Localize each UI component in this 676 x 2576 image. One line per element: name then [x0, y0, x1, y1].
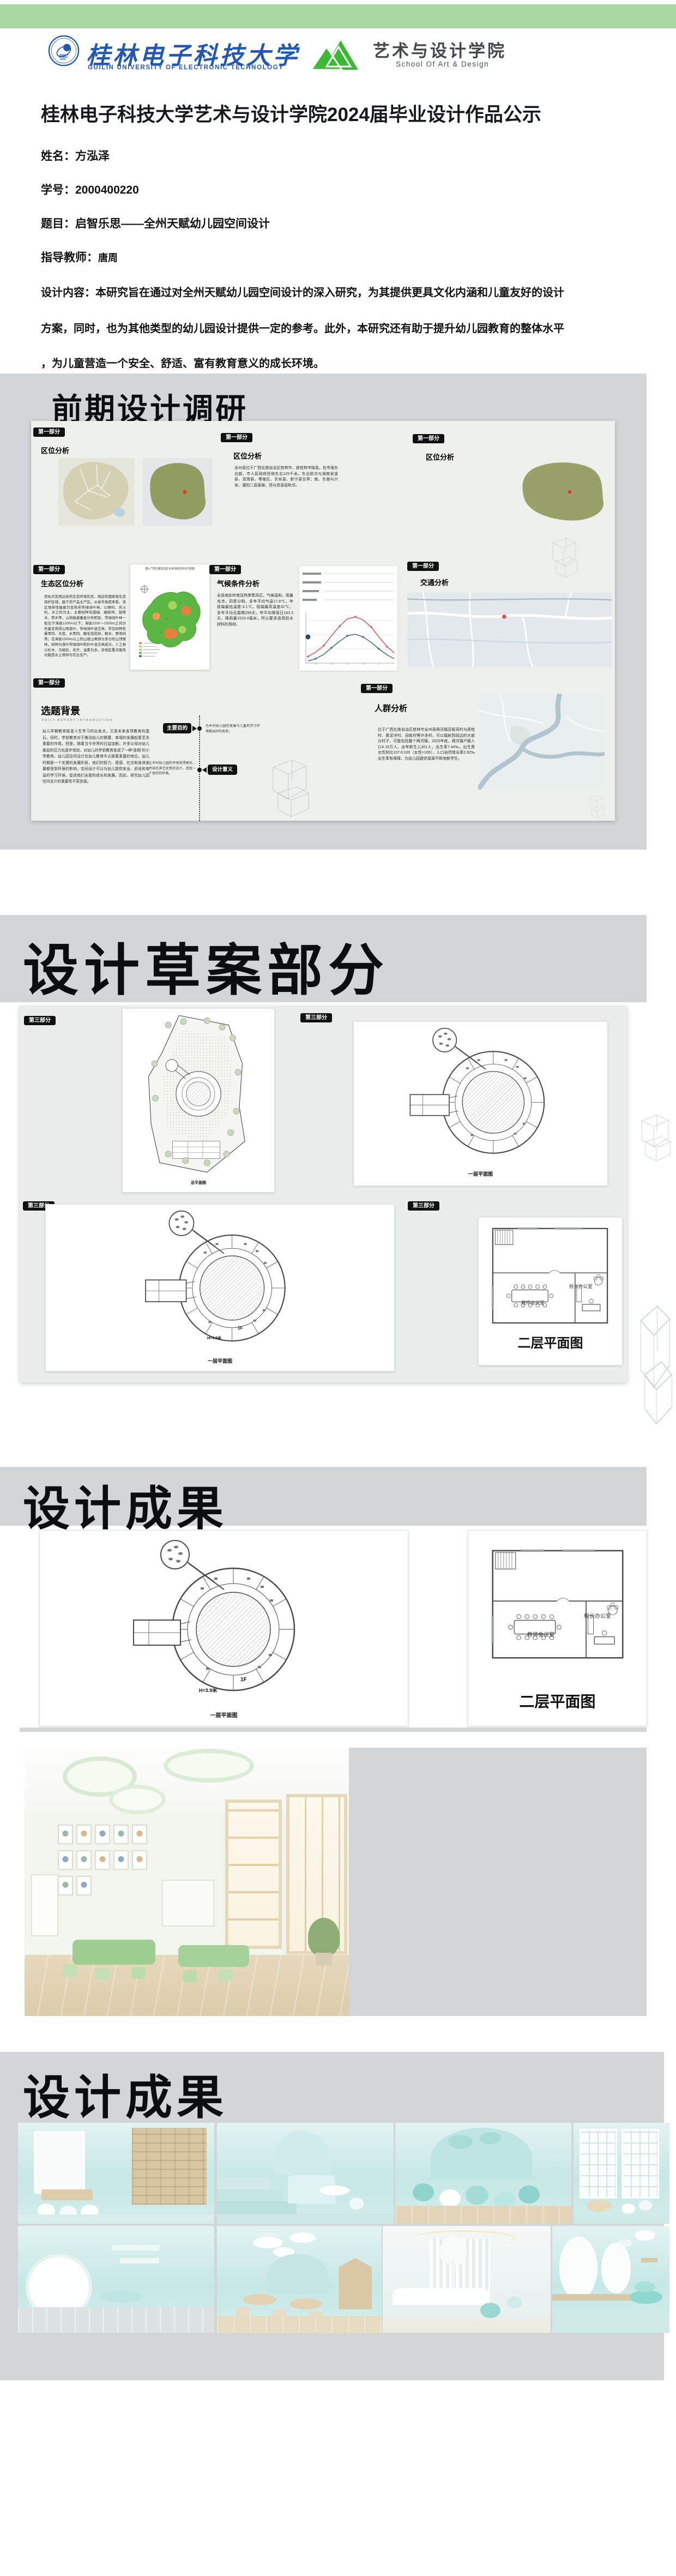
picture-frame [113, 1850, 129, 1870]
ceiling-circle [635, 2230, 656, 2241]
floor [383, 2318, 551, 2333]
result-floor2-panel: 教师会议室 校长办公室 二层平面图 [468, 1530, 647, 1726]
floor2-plan-drawing [487, 1225, 613, 1326]
result-floor1-panel: 1F H=3.9米 一层平面图 [39, 1530, 408, 1726]
purpose-button: 主要目的 [163, 723, 191, 733]
picture-frame [58, 1850, 73, 1870]
function-zone-map-panel: 图6 广西壮族自治区主体功能区划分示意图 [130, 564, 210, 670]
university-logo: 桂林电子科技大学 GUILIN UNIVERSITY OF ELECTRONIC… [48, 33, 331, 76]
picture-frame [58, 1876, 73, 1895]
oval-window [559, 2237, 598, 2300]
stool [349, 2198, 364, 2210]
cabinet [162, 1880, 214, 1927]
floor [574, 2216, 669, 2224]
office-room-label: 校长办公室 [569, 1283, 593, 1290]
background-subtitle: DAILY REPORT INTRODUCTION [42, 719, 113, 722]
field-topic-label: 题目： [41, 218, 75, 230]
stairs [217, 2177, 270, 2189]
design-content-text2: 方案，同时，也为其他类型的幼儿园设计提供一定的参考。此外，本研究还有助于提升幼儿… [41, 323, 564, 335]
wood-floor [217, 2316, 382, 2333]
section3-divider-bar [20, 1728, 647, 1732]
school-logo: 艺术与设计学院 School Of Art & Design [304, 33, 533, 76]
design-content-line1: 设计内容：本研究旨在通过对全州天赋幼儿园空间设计的深入研究，为其提供更具文化内涵… [41, 284, 564, 299]
rendering-photo [18, 2226, 214, 2333]
picture-frame [76, 1876, 92, 1895]
floor1-plan-drawing [130, 1539, 310, 1703]
eco-analysis-title: 生态区位分析 [41, 578, 83, 588]
section3-heading: 设计成果 [23, 1470, 228, 1538]
plan-caption: 一层平面图 [40, 1711, 408, 1719]
round-table [289, 2298, 322, 2309]
floor1-plan-drawing [138, 1210, 302, 1352]
floor-mark: 1F [240, 1677, 247, 1683]
stool [621, 2204, 635, 2214]
ceiling-light-icon [164, 1749, 254, 1783]
map-figure-caption: 图6 广西壮族自治区主体功能区划分示意图 [132, 567, 207, 570]
top-green-bar [0, 4, 676, 28]
kids-chair [95, 1968, 110, 1980]
site-plan-panel: 总平面图 [122, 1008, 275, 1193]
kids-table [73, 1940, 155, 1965]
rendering-photo [18, 2123, 214, 2224]
floor1-draft-panel: 一层平面图 [353, 1021, 608, 1186]
floor2-plan-drawing [487, 1547, 629, 1662]
height-mark: H=3.9米 [207, 1335, 221, 1341]
traffic-analysis-title: 交通分析 [420, 577, 449, 587]
part-tag: 第一部分 [209, 565, 241, 574]
university-name-english: GUILIN UNIVERSITY OF ELECTRONIC TECHNOLO… [88, 64, 284, 71]
wireframe-sketch-icon [260, 748, 315, 819]
location-analysis-title-1: 区位分析 [41, 445, 69, 455]
field-id-label: 学号： [41, 184, 75, 196]
plant [308, 1918, 340, 1956]
wall-shelf [120, 2258, 159, 2264]
poster-page: 桂林电子科技大学 GUILIN UNIVERSITY OF ELECTRONIC… [0, 0, 676, 2576]
floor2-draft-panel: 教师会议室 校长办公室 二层平面图 [478, 1217, 623, 1365]
stool [466, 2186, 488, 2205]
low-table [41, 2189, 93, 2200]
picture-frame [58, 1825, 73, 1844]
tree-trunk [451, 2260, 455, 2290]
wireframe-sketch-icon [581, 791, 611, 819]
curved-bench [393, 2288, 490, 2305]
location-analysis-text: 全州县位于广西壮族自治区桂林市，是桂林市辖县。在市境东北部，市人民政府驻地东北1… [234, 466, 338, 530]
part-tag: 第三部分 [24, 1016, 56, 1025]
plan-caption-large: 二层平面图 [479, 1332, 622, 1351]
stool [413, 2183, 434, 2201]
window [621, 2129, 659, 2199]
height-mark: H=3.9米 [199, 1687, 217, 1694]
pouf [635, 2282, 656, 2292]
arrow-left-icon [202, 767, 207, 773]
climate-analysis-title: 气候条件分析 [217, 578, 259, 588]
field-name: 姓名：方泓泽 [41, 147, 110, 164]
meaning-note: 让乡村幼儿园的环境变得更好，并结合其它优秀的设计，造就一个良好的环境。 [149, 761, 196, 777]
meeting-room-label: 教师会议室 [521, 1299, 545, 1306]
school-name-english: School Of Art & Design [396, 60, 489, 68]
window [225, 1799, 282, 1949]
floor1-plan-drawing [408, 1027, 556, 1164]
oval-window [601, 2243, 630, 2293]
part-tag: 第一部分 [361, 684, 393, 693]
field-student-id: 学号：2000400220 [41, 181, 139, 197]
climate-chart [299, 566, 397, 671]
guangxi-function-map [135, 572, 205, 666]
field-advisor: 指导教师：唐周 [41, 249, 118, 265]
county-map [142, 458, 212, 526]
picture-frame [95, 1850, 110, 1870]
stool [639, 2200, 653, 2211]
classroom-rendering-photo [25, 1748, 349, 2016]
cloud-decor [480, 2132, 501, 2144]
floor [217, 2214, 394, 2224]
flower-table [587, 2200, 612, 2212]
design-content-text3: ，为儿童营造一个安全、舒适、富有教育意义的成长环境。 [41, 358, 324, 370]
part-tag: 第一部分 [413, 434, 444, 443]
cloud-lamp [253, 2237, 282, 2249]
kids-chair [183, 1970, 197, 1982]
background-title: 选题背景 [41, 703, 80, 718]
arch-niche [267, 2254, 329, 2294]
floor [18, 2214, 214, 2224]
arrow-right-icon [192, 726, 197, 731]
school-name: 艺术与设计学院 [373, 37, 506, 62]
wireframe-sketch-icon [634, 1099, 672, 1170]
part-tag: 第一部分 [407, 562, 439, 571]
rendering-photo [395, 2123, 571, 2224]
kids-chair [63, 1965, 77, 1977]
design-content-label: 设计内容： [41, 287, 95, 299]
easel [31, 1874, 58, 1936]
field-name-label: 姓名： [41, 150, 75, 162]
field-topic-value: 启智乐思——全州天赋幼儿园空间设计 [75, 218, 270, 230]
wood-floor [18, 2307, 214, 2333]
cloud-decor [448, 2135, 473, 2149]
field-advisor-label: 指导教师： [41, 251, 98, 264]
wall-shelf [641, 2258, 657, 2262]
stool [439, 2189, 461, 2207]
wood-shelf [132, 2128, 207, 2205]
field-id-value: 2000400220 [75, 184, 139, 196]
picture-frame [95, 1825, 110, 1844]
meaning-button: 设计意义 [208, 765, 237, 775]
picture-frame [113, 1825, 129, 1844]
plant-pot [316, 1953, 332, 1966]
timeline-dot [197, 768, 202, 772]
picture-wall [56, 1823, 157, 1918]
picture-frame [132, 1825, 147, 1844]
office-room-label: 校长办公室 [584, 1611, 611, 1620]
wall-shelf [112, 2245, 159, 2250]
rendering-photo [574, 2123, 669, 2224]
traffic-map [407, 591, 612, 669]
arch-niche [274, 2131, 330, 2175]
kids-chair [219, 1969, 233, 1981]
location-analysis-title-2: 区位分析 [233, 450, 262, 461]
stool [480, 2303, 500, 2318]
picture-frame [76, 1825, 92, 1844]
people-analysis-title: 人群分析 [375, 702, 407, 714]
part-tag: 第一部分 [33, 565, 65, 574]
field-name-value: 方泓泽 [75, 150, 110, 162]
design-content-line2: 方案，同时，也为其他类型的幼儿园设计提供一定的参考。此外，本研究还有助于提升幼儿… [41, 320, 564, 335]
field-topic: 题目：启智乐思——全州天赋幼儿园空间设计 [41, 215, 270, 231]
draft-board: 第三部分 总平面图 第三部分 一层平面图 第三部分 1F H=3.9米 一层平面… [20, 1006, 627, 1382]
floor-mark: 1F [238, 1326, 243, 1331]
field-advisor-value: 唐周 [98, 252, 118, 263]
design-content-line3: ，为儿童营造一个安全、舒适、富有教育意义的成长环境。 [41, 354, 324, 370]
kids-table [178, 1945, 249, 1967]
rendering-photo [217, 2123, 394, 2224]
floor1-draft-panel-2: 1F H=3.9米 一层平面图 [45, 1204, 395, 1371]
stool [507, 2296, 522, 2308]
window-sill [552, 2294, 635, 2301]
wireframe-sketch-icon [544, 530, 582, 579]
round-table [243, 2294, 276, 2305]
rendering-photo [552, 2226, 669, 2333]
stairs [217, 2189, 282, 2201]
rendering-photo [217, 2226, 382, 2333]
design-content-text1: 本研究旨在通过对全州天赋幼儿园空间设计的深入研究，为其提供更具文化内涵和儿童友好… [95, 287, 564, 299]
university-seal-icon [48, 35, 80, 67]
stool [518, 2186, 540, 2204]
location-analysis-title-3: 区位分析 [426, 452, 454, 462]
background-text: 幼儿早期教育既是人生学习的出发点，又是未来各项教育的基石。同时，学前教育对于推动… [43, 729, 149, 815]
picture-frame [132, 1850, 147, 1870]
timeline-dot [197, 726, 202, 731]
region-map [511, 456, 612, 526]
window [34, 2131, 85, 2194]
rendering-photo [383, 2226, 551, 2333]
climate-analysis-text: 全县地处岭南亚热带季风区，气候温和，雨量充沛，四季分明，多年平均气温17.8℃，… [217, 593, 293, 664]
site-plan-drawing [128, 1012, 269, 1176]
part-tag: 第一部分 [221, 433, 252, 442]
kids-chair [131, 1967, 146, 1979]
plan-caption: 一层平面图 [354, 1170, 607, 1177]
wireframe-sketch-icon [632, 1281, 674, 1429]
page-title: 桂林电子科技大学艺术与设计学院2024届毕业设计作品公示 [41, 99, 541, 127]
plan-caption-large: 二层平面图 [468, 1690, 647, 1712]
round-table [100, 2290, 143, 2303]
wood-floor [395, 2206, 571, 2224]
meeting-room-label: 教师会议室 [527, 1630, 554, 1638]
part-tag: 第三部分 [408, 1201, 439, 1211]
picture-frame [76, 1850, 92, 1870]
section2-heading: 设计草案部分 [23, 926, 389, 1006]
part-tag: 第一部分 [33, 428, 65, 437]
ceiling-light-icon [109, 1785, 166, 1814]
round-table [319, 2186, 349, 2196]
river-map [478, 694, 605, 790]
cloud-lamp [289, 2232, 316, 2243]
purpose-note: 为乡村幼儿园的发展与儿童的学习环境做出好的改变。 [206, 724, 260, 735]
part-tag: 第一部分 [33, 678, 65, 688]
plan-caption: 一层平面图 [46, 1357, 394, 1364]
plan-caption: 总平面图 [123, 1180, 274, 1185]
section4-heading: 设计成果 [23, 2059, 228, 2127]
province-map [58, 458, 135, 526]
eco-analysis-text: 目标点及周边自然生态环境优良，周边有国家级生态保护区域，属于农产品主产区。从省市… [44, 594, 126, 672]
part-tag: 第三部分 [300, 1013, 332, 1022]
window [580, 2129, 617, 2199]
section3-right-backdrop [349, 1748, 647, 2016]
school-logo-icon [304, 35, 365, 73]
floor [552, 2312, 669, 2333]
house-shelf [339, 2258, 371, 2309]
people-analysis-text: 位于广西壮族自治区桂林市全州县两河镇百板洞村与厚桂村、黄泥冲村、田乾村等许多村，… [378, 727, 475, 787]
research-board: 第一部分 区位分析 第一部分 区位分析 全州县位于广西壮族自治区桂林市，是桂林市… [31, 421, 615, 821]
